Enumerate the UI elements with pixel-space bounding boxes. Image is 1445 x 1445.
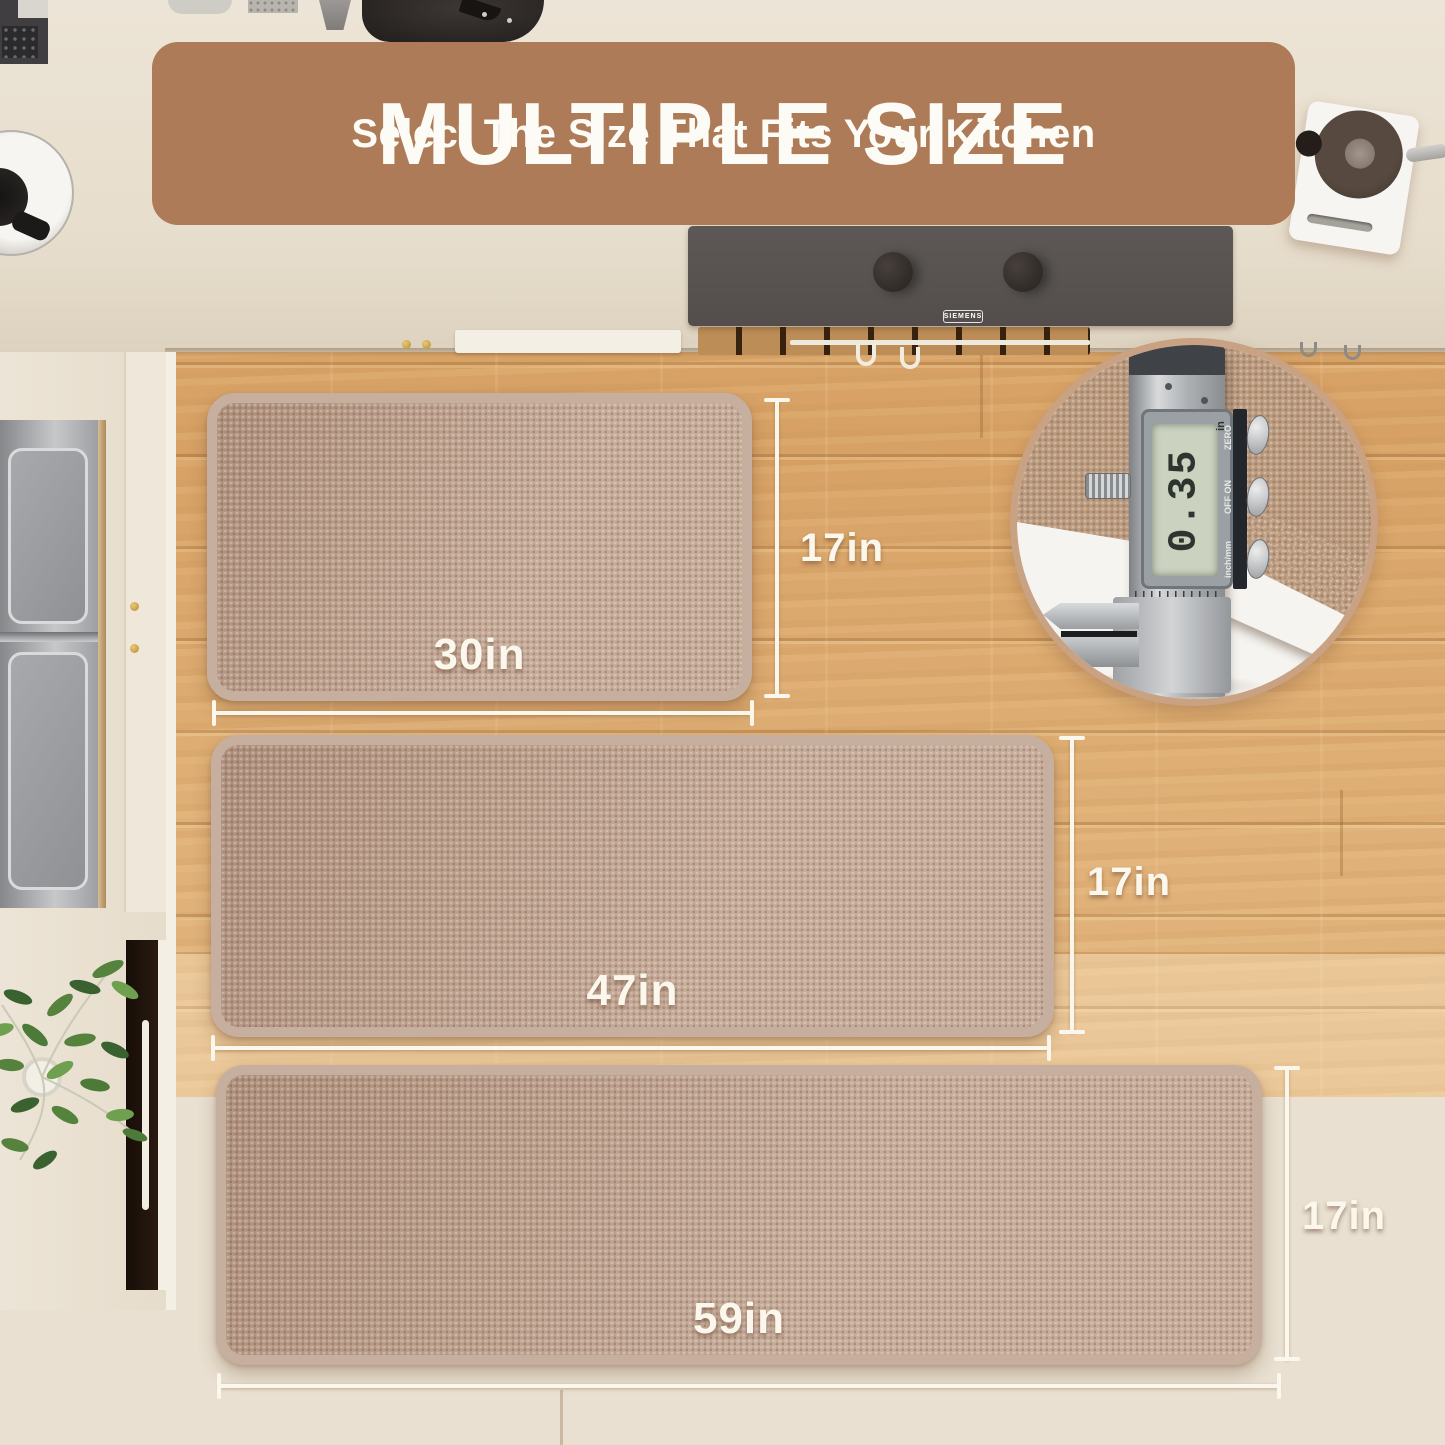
dim-line-width-medium [212,1046,1050,1050]
floor-plank-joint [980,352,983,438]
oven-panel [8,448,88,624]
cooktop: SIEMENS [688,226,1233,326]
iron-screw [507,18,512,23]
mat-height-label: 17in [1302,1196,1386,1236]
air-fryer [1288,100,1421,256]
banner-subtitle: Select The Size That Fits Your Kitchen [351,114,1095,154]
iron-appliance [362,0,544,42]
iron-screw [482,12,487,17]
oven [0,420,100,908]
plant-leaves [0,956,149,1173]
bowl [168,0,232,14]
cooktop-brand: SIEMENS [943,310,983,323]
mat-width-label: 30in [433,633,525,677]
mat-width-label: 47in [586,969,678,1013]
caliper-button-label: inch/mm [1222,533,1234,585]
floor-plank-joint [1340,790,1343,876]
caliper-screw [1201,397,1208,404]
coffee-machine-grid [2,26,38,58]
coffee-machine [0,0,48,64]
towel-rail [790,340,1090,345]
metal-tray [248,0,298,13]
rail-hook [856,344,876,366]
air-fryer-vent [1307,213,1374,232]
caliper-jaw-lower [1031,637,1139,667]
mat-height-label: 17in [800,528,884,568]
dim-line-height-medium [1070,737,1074,1033]
drawer-knob [402,340,411,349]
plant [0,945,165,1195]
caliper-button-label: OFF ON [1222,471,1234,523]
caliper-screen: 0.35 [1152,424,1218,576]
cooktop-knob [1003,252,1043,292]
caliper-screw [1165,383,1172,390]
caliper-cap [1129,345,1225,375]
dim-line-height-small [775,399,779,697]
coffee-machine-top [18,0,48,18]
oven-divider [0,632,100,642]
caliper-lcd: 0.35 in [1141,409,1233,589]
oven-panel [8,652,88,890]
cabinet-knob [130,602,139,611]
caliper-jaw-gap [1061,631,1137,637]
drawer-front [455,330,681,353]
cabinet-knob [130,644,139,653]
mat-height-label: 17in [1087,862,1171,902]
caliper-thumb-roller [1085,473,1131,499]
cooktop-knob [873,252,913,292]
kettle-handle [10,209,53,243]
mat-large: 59in [216,1065,1262,1365]
mat-small: 30in [207,393,752,701]
rail-hook [900,347,920,369]
caliper-button-strip [1233,409,1247,589]
caliper-jaw-upper [1043,603,1139,629]
iron-handle [459,0,502,24]
thickness-inset: 0.35 in ZERO OFF ON inch/mm [1010,338,1378,706]
cabinet-door [124,352,168,912]
drawer-knob [422,340,431,349]
mat-medium: 47in [211,735,1054,1037]
header-banner: MULTIPLE SIZE Select The Size That Fits … [152,42,1295,225]
floor-plank-joint [560,1390,563,1445]
dim-line-height-large [1285,1067,1289,1360]
oven-trim [98,420,106,908]
caliper-reading: 0.35 [1163,448,1208,552]
caliper-button-label: ZERO [1222,411,1234,463]
dim-line-width-large [218,1384,1280,1388]
product-infographic: SIEMENS MULTIPLE SIZE Select The Size Th… [0,0,1445,1445]
mat-width-label: 59in [693,1297,785,1341]
dim-line-width-small [213,711,753,715]
